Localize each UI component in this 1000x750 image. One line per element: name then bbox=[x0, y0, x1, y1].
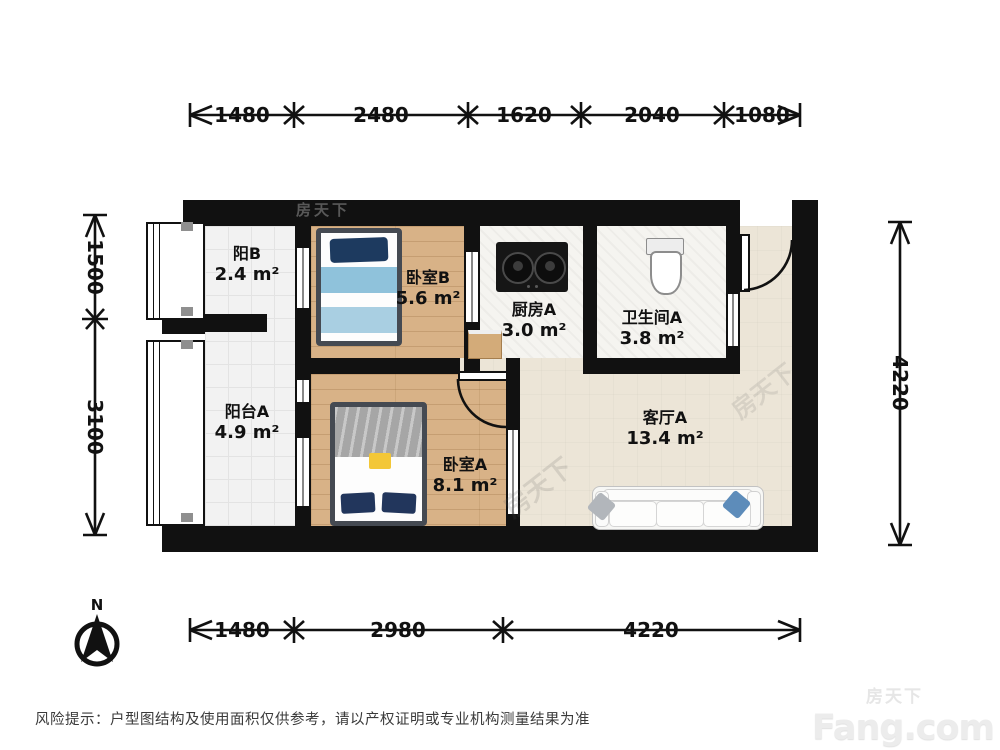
fang-logo-chinese: 房天下 bbox=[866, 682, 923, 707]
window-endcap bbox=[181, 307, 193, 316]
compass-icon: N bbox=[77, 596, 117, 664]
compass-north-label: N bbox=[91, 596, 104, 614]
watermark-text: 房天下 bbox=[296, 199, 350, 220]
pillow-icon bbox=[340, 492, 375, 514]
sofa-cushion bbox=[609, 501, 657, 527]
dim-bottom-1: 1480 bbox=[209, 618, 275, 642]
dim-top-3: 1620 bbox=[491, 103, 557, 127]
fang-logo: 房天下 Fang.com bbox=[812, 686, 992, 742]
room-label-balcony-b: 阳B2.4 m² bbox=[187, 244, 307, 287]
cushion-icon bbox=[369, 453, 391, 469]
floor-plan-page: 房天下 房天下 房天下 bbox=[0, 0, 1000, 750]
entry-door-leaf bbox=[740, 234, 750, 292]
room-label-bedroom-b: 卧室B5.6 m² bbox=[368, 268, 488, 311]
burner-icon bbox=[534, 252, 566, 284]
blanket-icon bbox=[321, 307, 397, 333]
window-endcap bbox=[181, 340, 193, 349]
dim-left-2: 3100 bbox=[83, 394, 107, 460]
room-label-bathroom-a: 卫生间A3.8 m² bbox=[592, 308, 712, 351]
sofa-cushion bbox=[656, 501, 704, 527]
bathroom-door bbox=[726, 292, 740, 348]
wall-balcony-divider bbox=[205, 314, 267, 332]
dimension-line-bottom bbox=[190, 617, 800, 643]
dim-top-4: 2040 bbox=[619, 103, 685, 127]
dim-top-1: 1480 bbox=[209, 103, 275, 127]
wall-right bbox=[792, 200, 818, 552]
wall-top bbox=[183, 200, 740, 226]
stove-icon bbox=[496, 242, 568, 292]
toilet-icon bbox=[646, 238, 682, 292]
window-endcap bbox=[181, 513, 193, 522]
dim-top-2: 2480 bbox=[348, 103, 414, 127]
room-label-living-a: 客厅A13.4 m² bbox=[605, 408, 725, 451]
burner-icon bbox=[502, 252, 534, 284]
dim-top-5: 1080 bbox=[729, 103, 795, 127]
dim-left-1: 1500 bbox=[83, 234, 107, 300]
dim-bottom-2: 2980 bbox=[365, 618, 431, 642]
window-balconyA-bedroomA-upper bbox=[295, 378, 311, 404]
wall-door-stub bbox=[506, 358, 520, 374]
window-balconyA-bedroomA-lower bbox=[295, 436, 311, 508]
risk-disclaimer-text: 风险提示：户型图结构及使用面积仅供参考，请以产权证明或专业机构测量结果为准 bbox=[35, 708, 590, 729]
room-label-kitchen-a: 厨房A3.0 m² bbox=[474, 300, 594, 343]
dim-bottom-3: 4220 bbox=[618, 618, 684, 642]
room-label-bedroom-a: 卧室A8.1 m² bbox=[405, 455, 525, 498]
fang-logo-english: Fang.com bbox=[812, 708, 994, 748]
window-endcap bbox=[181, 222, 193, 231]
wall-bedroom-b-bottom bbox=[295, 358, 460, 374]
wall-bathroom-bottom bbox=[583, 358, 740, 374]
bedroom-a-door-leaf bbox=[458, 371, 508, 381]
dim-right-1: 4220 bbox=[888, 350, 912, 416]
sofa-icon bbox=[592, 486, 764, 530]
pillow-icon bbox=[330, 237, 389, 263]
blanket-icon bbox=[335, 407, 422, 457]
room-label-balcony-a: 阳台A4.9 m² bbox=[187, 402, 307, 445]
